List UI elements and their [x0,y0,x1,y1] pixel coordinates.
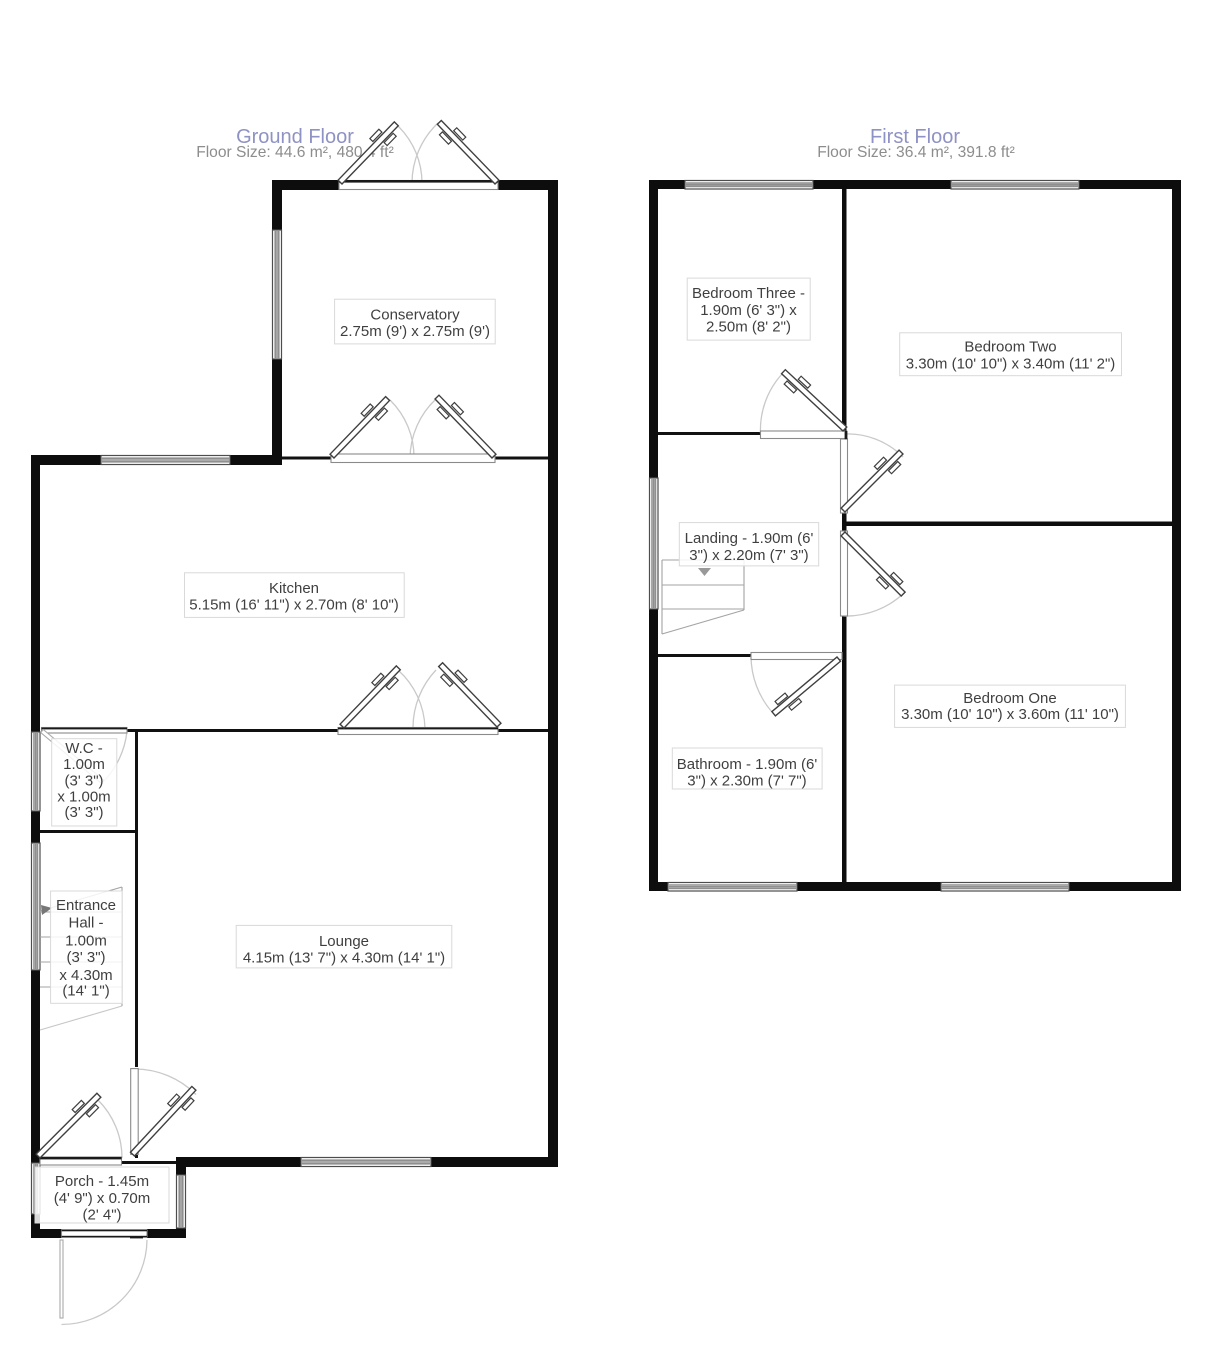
svg-text:W.C -: W.C - [65,740,103,757]
svg-text:3") x 2.30m (7' 7"): 3") x 2.30m (7' 7") [687,773,806,790]
svg-text:3.30m (10' 10") x 3.60m (11' 1: 3.30m (10' 10") x 3.60m (11' 10") [901,706,1119,723]
svg-text:Porch - 1.45m: Porch - 1.45m [55,1173,149,1190]
svg-text:Entrance: Entrance [56,897,116,914]
svg-text:(2' 4"): (2' 4") [82,1207,121,1224]
svg-text:5.15m (16' 11") x 2.70m (8' 10: 5.15m (16' 11") x 2.70m (8' 10") [189,597,399,614]
svg-text:3.30m (10' 10") x 3.40m (11' 2: 3.30m (10' 10") x 3.40m (11' 2") [906,356,1116,373]
svg-text:2.50m (8' 2"): 2.50m (8' 2") [706,318,791,335]
svg-text:Hall -: Hall - [68,915,103,932]
svg-text:(14' 1"): (14' 1") [62,983,109,1000]
svg-text:Floor Size: 36.4 m², 391.8 ft²: Floor Size: 36.4 m², 391.8 ft² [817,144,1015,161]
svg-text:1.90m (6' 3") x: 1.90m (6' 3") x [700,302,797,319]
svg-text:Landing - 1.90m (6': Landing - 1.90m (6' [685,530,814,547]
svg-text:(4' 9") x 0.70m: (4' 9") x 0.70m [54,1190,151,1207]
svg-text:(3' 3"): (3' 3") [64,773,103,790]
svg-text:Bedroom Three -: Bedroom Three - [692,285,805,302]
svg-text:Bedroom Two: Bedroom Two [964,339,1056,356]
svg-text:(3' 3"): (3' 3") [64,804,103,821]
svg-text:Bathroom - 1.90m (6': Bathroom - 1.90m (6' [677,756,818,773]
svg-text:3") x 2.20m (7' 3"): 3") x 2.20m (7' 3") [689,547,808,564]
svg-text:(3' 3"): (3' 3") [66,949,105,966]
svg-text:1.00m: 1.00m [63,756,105,773]
svg-text:2.75m (9') x 2.75m (9'): 2.75m (9') x 2.75m (9') [340,323,490,340]
svg-text:Lounge: Lounge [319,933,369,950]
svg-text:1.00m: 1.00m [65,933,107,950]
svg-text:4.15m (13' 7") x 4.30m (14' 1": 4.15m (13' 7") x 4.30m (14' 1") [243,950,445,967]
svg-text:x 4.30m: x 4.30m [59,967,112,984]
svg-text:Bedroom One: Bedroom One [963,690,1056,707]
svg-text:x 1.00m: x 1.00m [57,789,110,806]
svg-text:Kitchen: Kitchen [269,580,319,597]
svg-text:Conservatory: Conservatory [370,307,460,324]
